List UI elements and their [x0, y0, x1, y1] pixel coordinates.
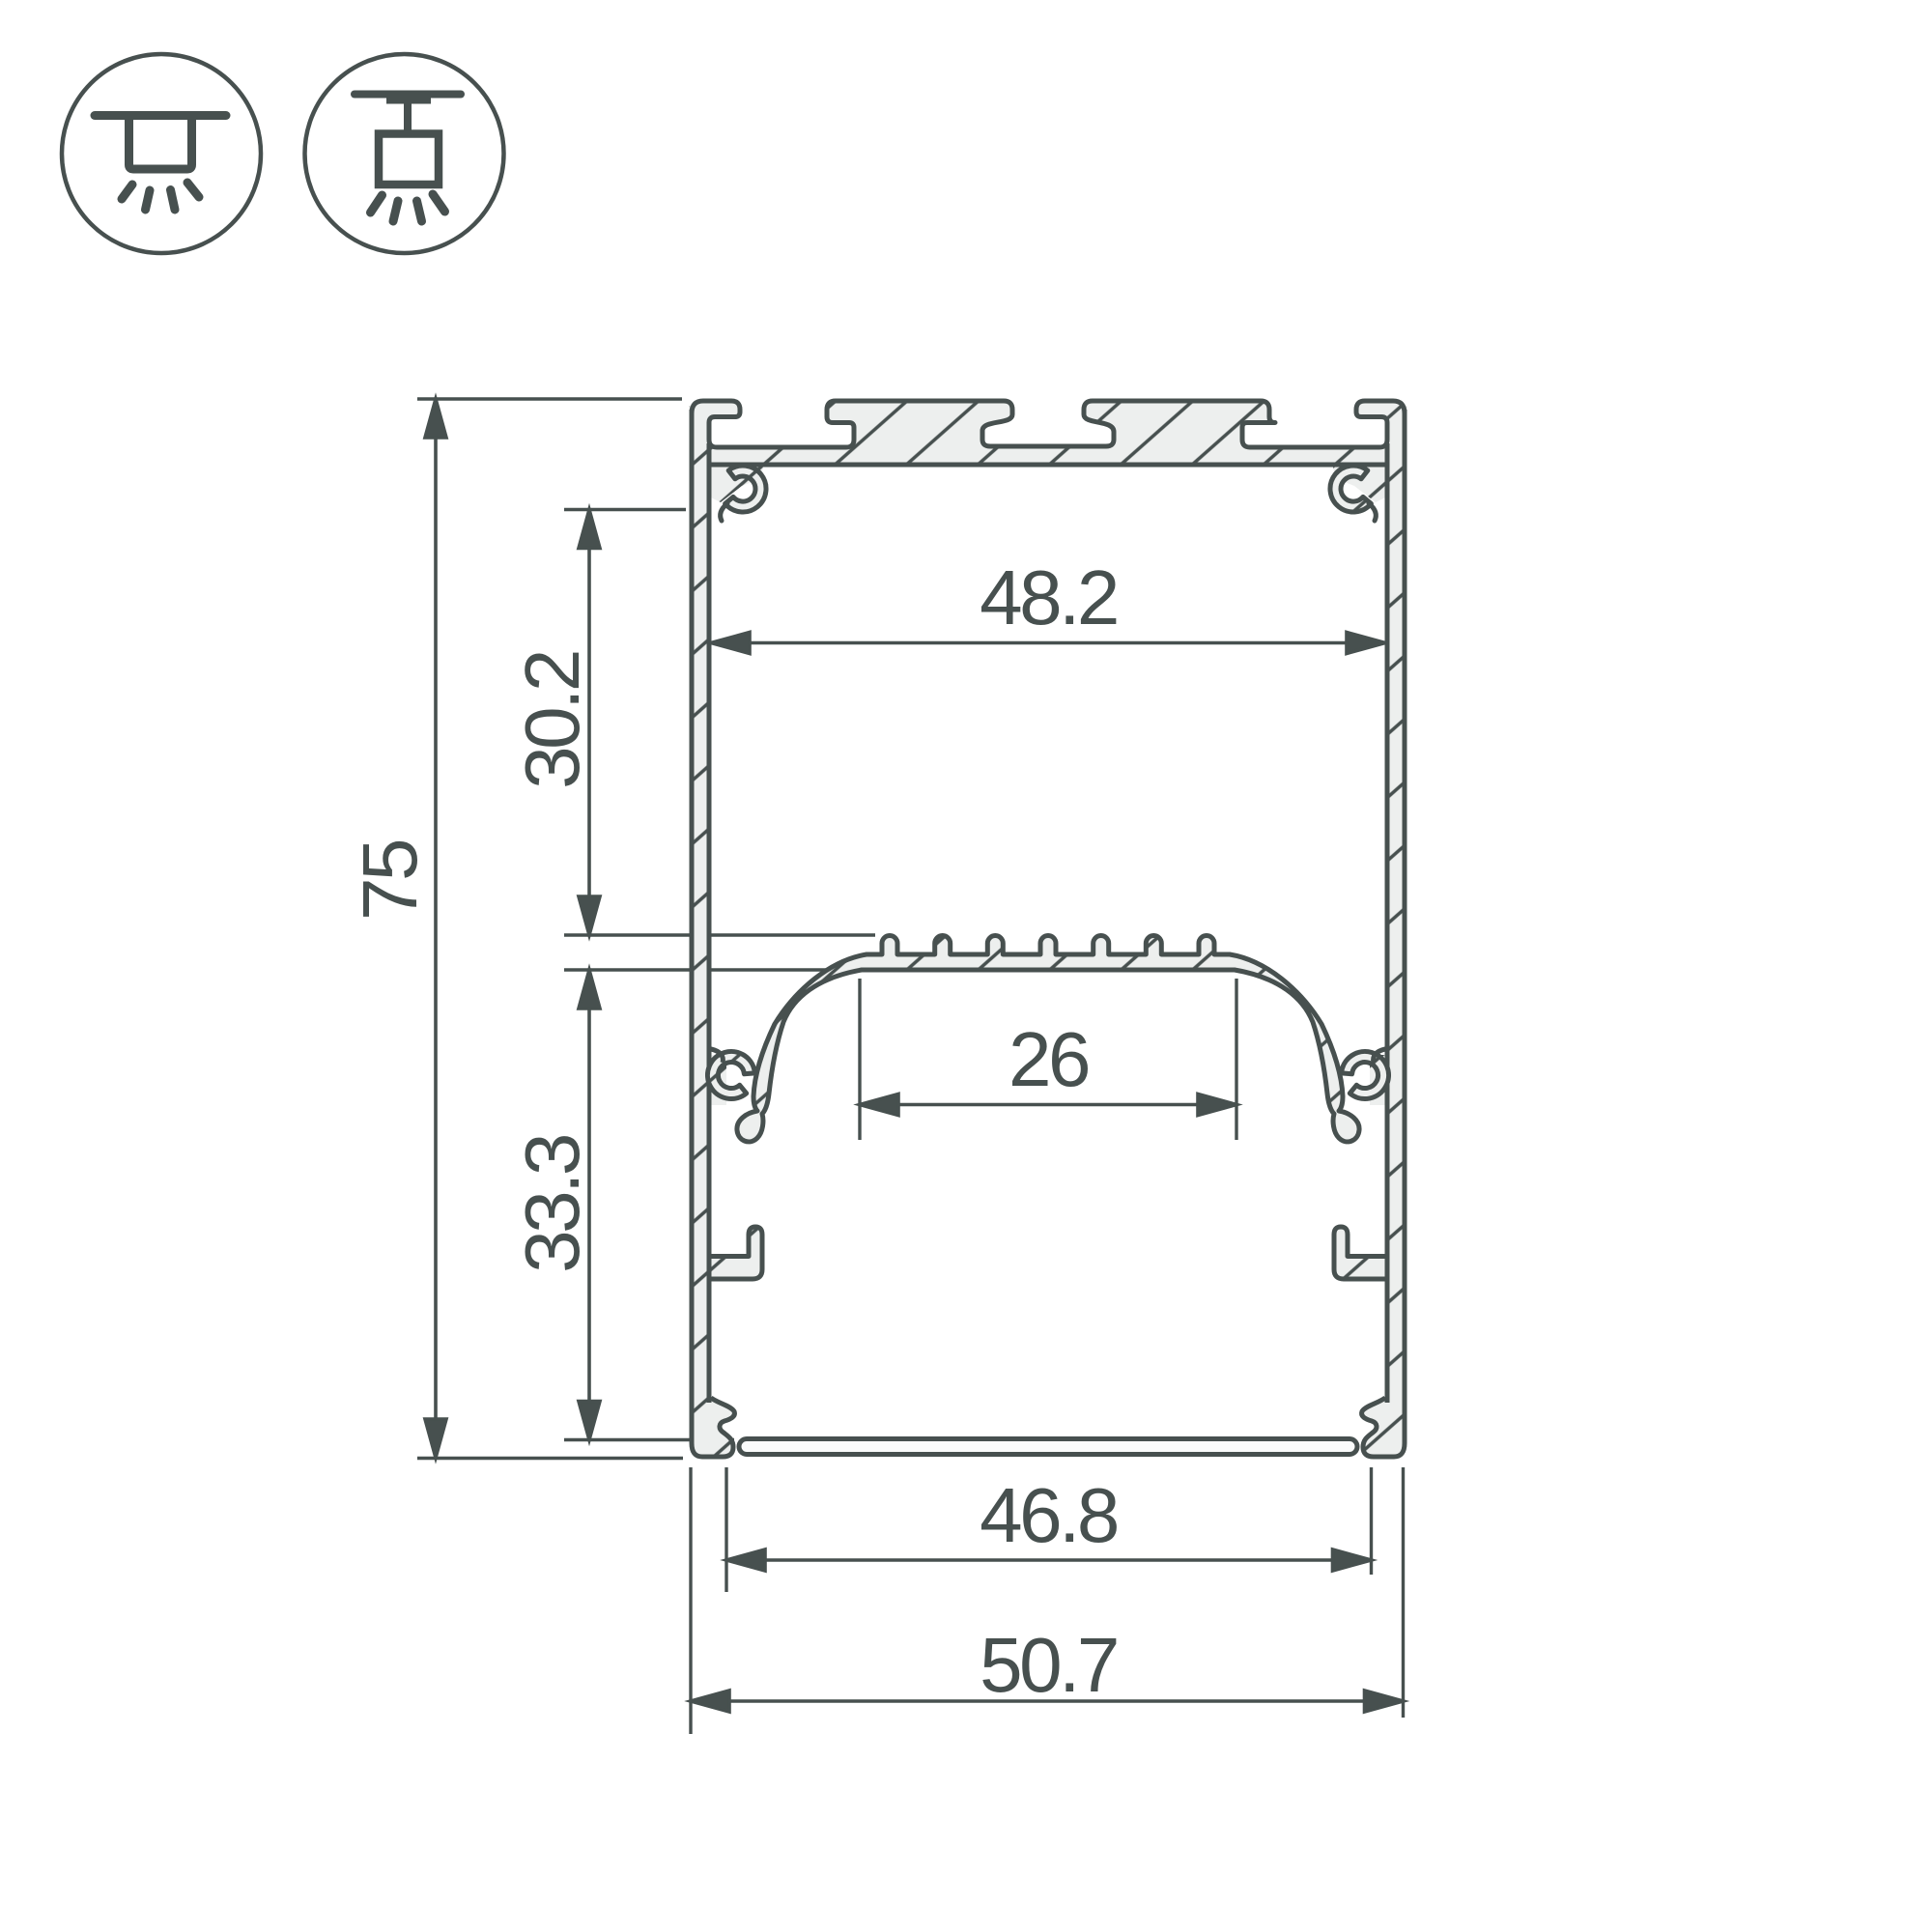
svg-text:33.3: 33.3 — [509, 1136, 595, 1273]
svg-text:30.2: 30.2 — [509, 652, 595, 789]
svg-text:48.2: 48.2 — [980, 554, 1117, 640]
svg-text:46.8: 46.8 — [980, 1472, 1118, 1558]
svg-text:75: 75 — [347, 840, 433, 921]
svg-text:50.7: 50.7 — [980, 1622, 1117, 1708]
svg-text:26: 26 — [1009, 1016, 1088, 1102]
